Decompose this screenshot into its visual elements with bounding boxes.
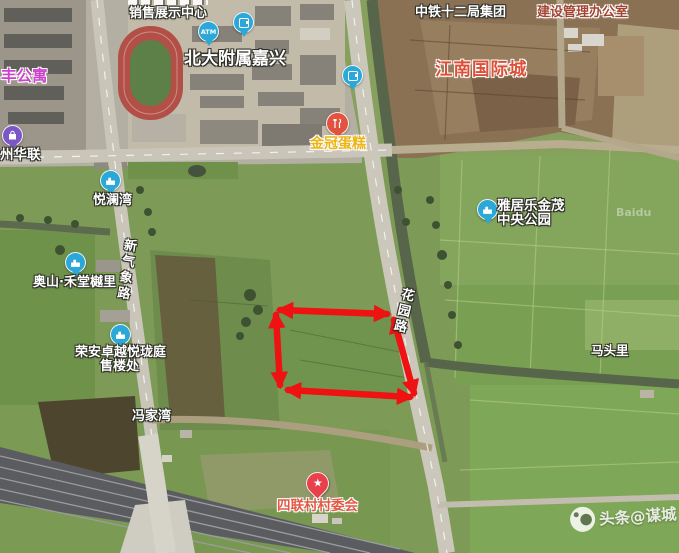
fork-knife-glyph [332,118,343,129]
poi-pointer [205,40,213,46]
residence-icon-yuelanwan[interactable] [100,170,121,191]
label-yuelanwan[interactable]: 悦澜湾 [93,194,132,208]
label-hualian[interactable]: 州华联 [0,148,41,162]
label-aoshan-hetang[interactable]: 奥山·禾堂樾里 [33,276,116,290]
poi-pointer [240,31,248,37]
tile-credit: Baidu [616,206,651,219]
star-glyph: ★ [313,478,323,489]
label-jiangnan-international-city[interactable]: 江南国际城 [435,61,528,79]
building-glyph [70,257,81,268]
exit-door-glyph [239,18,249,28]
exit-door-glyph [348,71,358,81]
residence-icon-aoshan[interactable] [65,252,86,273]
poi-pointer [349,84,357,90]
label-feng-apartment[interactable]: 丰公寓 [1,68,48,84]
shopping-bag-glyph [7,130,18,141]
atm-icon-label: ATM [201,28,216,36]
shopping-mall-icon[interactable] [2,125,23,146]
building-glyph [482,204,493,215]
building-glyph [115,329,126,340]
label-yajule-jinmao-line2[interactable]: 中央公园 [497,213,551,227]
label-sales-center[interactable]: 销售展示中心 [129,7,207,21]
label-rongan-sales-line2[interactable]: 售楼处 [100,360,139,374]
satellite-map: Baidu 销售展示中心 北大附属嘉兴 中铁十二局集团 建设管理办公室 江南国际… [0,0,679,553]
park-icon-yajule[interactable] [477,199,498,220]
sales-office-icon-rongan[interactable] [110,324,131,345]
label-fengjiawan[interactable]: 冯家湾 [132,410,171,424]
toutiao-logo-icon [569,506,596,533]
building-glyph [105,175,116,186]
label-construction-management-office[interactable]: 建设管理办公室 [537,6,628,20]
poi-pointer [484,218,492,224]
gate-exit-icon-2[interactable] [342,65,363,86]
watermark-text: 头条@谋城 [598,502,677,529]
running-track [118,26,183,120]
label-pku-jiaxing-school[interactable]: 北大附属嘉兴 [184,51,286,69]
gate-exit-icon[interactable] [233,12,254,33]
atm-icon[interactable]: ATM [198,21,219,42]
clipped-label-top [128,0,208,5]
label-silian-village-committee[interactable]: 四联村村委会 [277,499,358,513]
label-jinguan-cake[interactable]: 金冠蛋糕 [310,137,366,152]
restaurant-icon[interactable] [326,112,349,135]
label-matouli[interactable]: 马头里 [591,344,629,357]
label-rongan-sales-line1[interactable]: 荣安卓越悦珑庭 [75,346,166,360]
label-china-railway-12th-group[interactable]: 中铁十二局集团 [415,6,506,20]
